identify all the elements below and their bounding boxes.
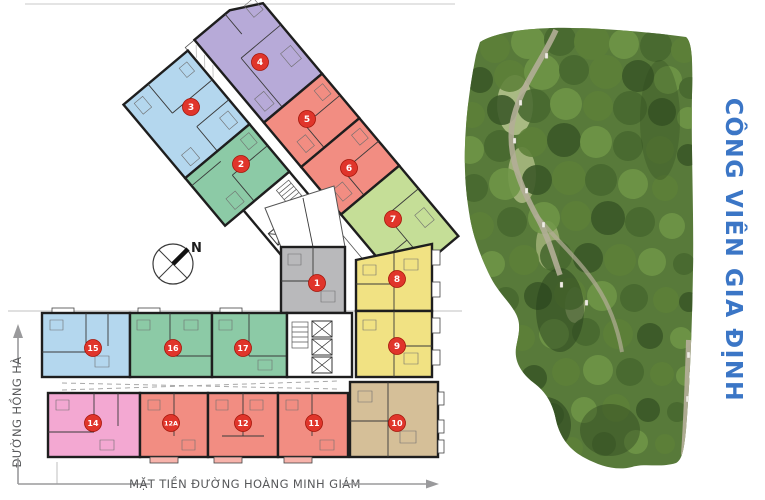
- svg-text:1: 1: [314, 279, 320, 289]
- svg-text:3: 3: [188, 103, 194, 113]
- svg-text:17: 17: [237, 344, 248, 353]
- unit-badge-1: 1: [309, 275, 326, 292]
- svg-text:15: 15: [87, 344, 99, 353]
- street-bottom: MẶT TIỀN ĐƯỜNG HOÀNG MINH GIÁM: [18, 475, 439, 491]
- unit-badge-8: 8: [389, 271, 406, 288]
- svg-text:2: 2: [238, 160, 244, 170]
- unit-badge-5: 5: [299, 111, 316, 128]
- svg-text:9: 9: [394, 342, 400, 352]
- svg-text:10: 10: [391, 419, 403, 428]
- svg-text:7: 7: [390, 215, 396, 225]
- unit-badge-3: 3: [183, 99, 200, 116]
- unit-badge-10: 10: [389, 415, 406, 432]
- floorplan-canvas: N ĐƯỜNG HỒNG HÀ MẶT TIỀN ĐƯỜNG HOÀNG MIN…: [0, 0, 765, 500]
- unit-badge-6: 6: [341, 160, 358, 177]
- svg-text:12A: 12A: [164, 420, 178, 428]
- svg-text:5: 5: [304, 115, 310, 125]
- street-bottom-label: MẶT TIỀN ĐƯỜNG HOÀNG MINH GIÁM: [129, 475, 361, 491]
- main-core: [287, 313, 352, 377]
- svg-text:16: 16: [167, 344, 179, 353]
- park-photo: [456, 20, 705, 480]
- unit-badge-7: 7: [385, 211, 402, 228]
- unit-badge-9: 9: [389, 338, 406, 355]
- unit-badge-16: 16: [165, 340, 182, 357]
- unit-badge-12a: 12A: [163, 415, 180, 432]
- street-left: ĐƯỜNG HỒNG HÀ: [8, 324, 24, 484]
- svg-text:4: 4: [257, 58, 263, 68]
- svg-text:12: 12: [237, 419, 248, 428]
- unit-badge-17: 17: [235, 340, 252, 357]
- street-left-label: ĐƯỜNG HỒNG HÀ: [8, 356, 24, 467]
- unit-badge-4: 4: [252, 54, 269, 71]
- unit-badge-14: 14: [85, 415, 102, 432]
- svg-text:11: 11: [308, 419, 320, 428]
- floorplan-page: N ĐƯỜNG HỒNG HÀ MẶT TIỀN ĐƯỜNG HOÀNG MIN…: [0, 0, 765, 500]
- park-title: CÔNG VIÊN GIA ĐỊNH: [720, 98, 748, 402]
- compass-icon: N: [153, 241, 202, 284]
- unit-badge-15: 15: [85, 340, 102, 357]
- svg-text:8: 8: [394, 275, 400, 285]
- ramp-dashes: [62, 381, 338, 390]
- svg-text:14: 14: [87, 419, 99, 428]
- svg-text:6: 6: [346, 164, 352, 174]
- compass-north-label: N: [191, 241, 202, 256]
- unit-badge-2: 2: [233, 156, 250, 173]
- unit-badge-11: 11: [306, 415, 323, 432]
- unit-badge-12: 12: [235, 415, 252, 432]
- slab-bottom-balconies: [150, 457, 312, 463]
